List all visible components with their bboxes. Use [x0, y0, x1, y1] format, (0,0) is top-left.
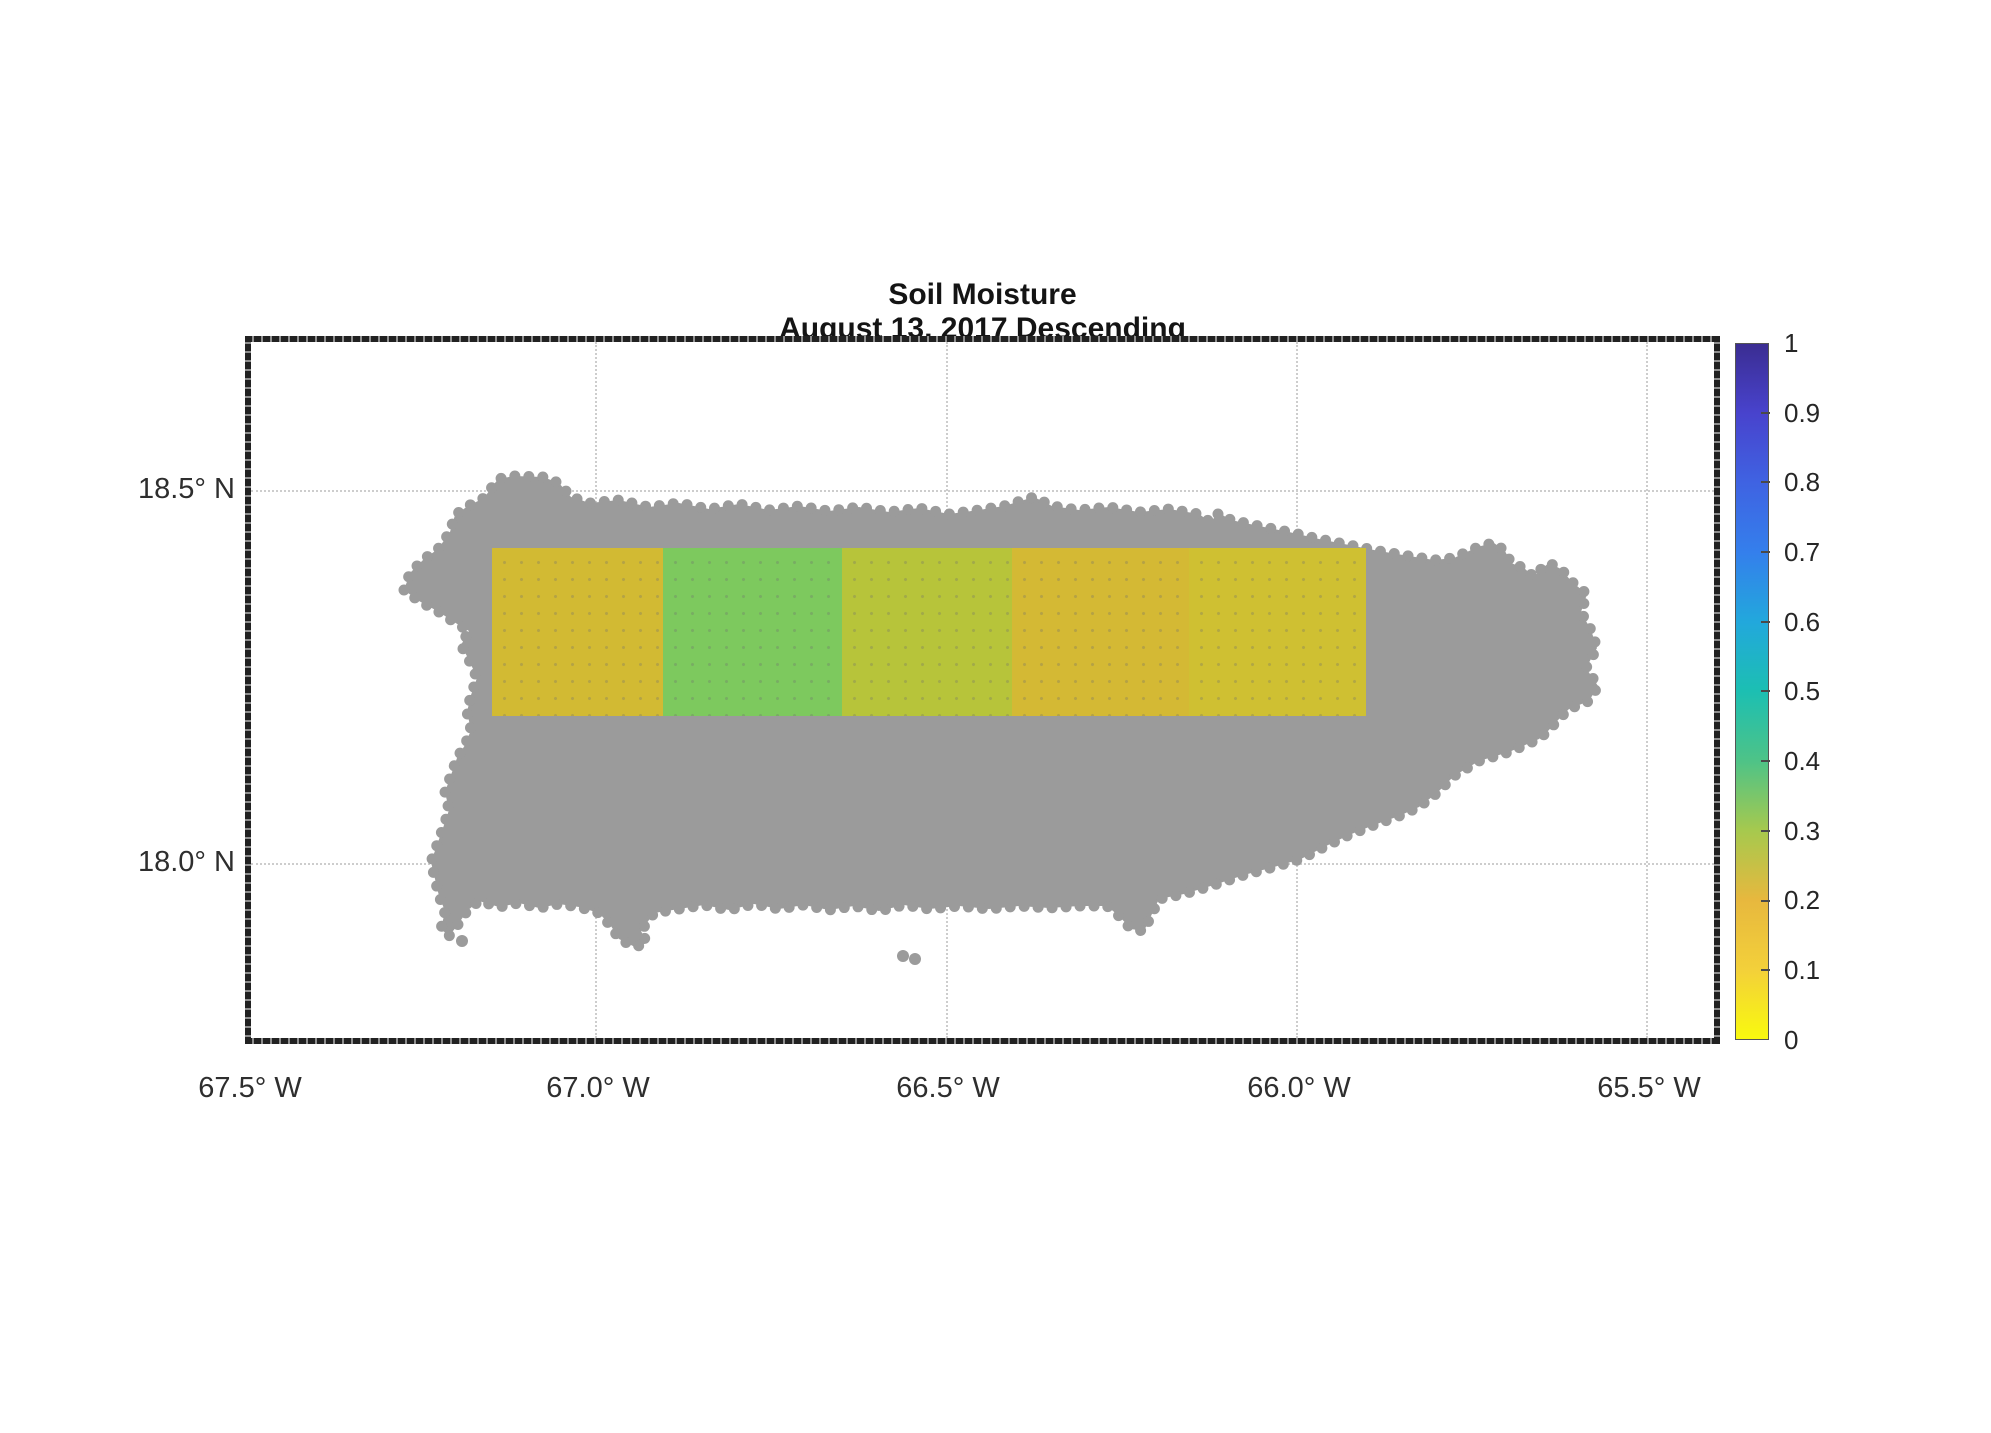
colorbar-tick-mark	[1761, 621, 1770, 623]
colorbar-label-0-1: 0.1	[1784, 955, 1820, 986]
colorbar-tick-mark	[1761, 900, 1770, 902]
colorbar-label-0-7: 0.7	[1784, 537, 1820, 568]
plot-frame-bottom	[245, 1038, 1720, 1044]
y-tick-18-5n: 18.5° N	[95, 473, 235, 506]
colorbar-tick-mark	[1761, 551, 1770, 553]
figure-canvas: Soil Moisture August 13, 2017 Descending…	[0, 0, 1991, 1433]
colorbar-label-0-2: 0.2	[1784, 885, 1820, 916]
colorbar-label-0-5: 0.5	[1784, 676, 1820, 707]
soil-moisture-cell-5	[1189, 548, 1366, 716]
x-tick-67-0w: 67.0° W	[518, 1072, 678, 1105]
colorbar-label-0: 0	[1784, 1025, 1798, 1056]
soil-moisture-cell-2	[663, 548, 842, 716]
colorbar-label-1: 1	[1784, 328, 1798, 359]
offshore-islet-dot	[909, 953, 921, 965]
plot-frame-top	[245, 336, 1720, 342]
soil-moisture-cell-3	[842, 548, 1012, 716]
colorbar-tick-mark	[1761, 690, 1770, 692]
soil-moisture-cell-4	[1012, 548, 1189, 716]
colorbar-tick-mark	[1761, 830, 1770, 832]
offshore-islet-dot	[897, 950, 909, 962]
x-tick-66-0w: 66.0° W	[1219, 1072, 1379, 1105]
x-tick-67-5w: 67.5° W	[170, 1072, 330, 1105]
y-tick-18-0n: 18.0° N	[95, 846, 235, 879]
colorbar-tick-mark	[1761, 760, 1770, 762]
plot-frame-left	[245, 336, 251, 1044]
soil-moisture-cell-1	[492, 548, 663, 716]
map-plot-area	[251, 342, 1714, 1038]
colorbar-label-0-6: 0.6	[1784, 607, 1820, 638]
colorbar-tick-mark	[1761, 481, 1770, 483]
colorbar-tick-mark	[1761, 412, 1770, 414]
offshore-islet-dot	[456, 935, 468, 947]
plot-frame-right	[1714, 336, 1720, 1044]
colorbar-label-0-9: 0.9	[1784, 398, 1820, 429]
x-tick-65-5w: 65.5° W	[1569, 1072, 1729, 1105]
colorbar-label-0-8: 0.8	[1784, 467, 1820, 498]
colorbar-tick-mark	[1761, 969, 1770, 971]
chart-title: Soil Moisture	[245, 278, 1720, 312]
x-tick-66-5w: 66.5° W	[868, 1072, 1028, 1105]
colorbar-label-0-3: 0.3	[1784, 816, 1820, 847]
colorbar-label-0-4: 0.4	[1784, 746, 1820, 777]
